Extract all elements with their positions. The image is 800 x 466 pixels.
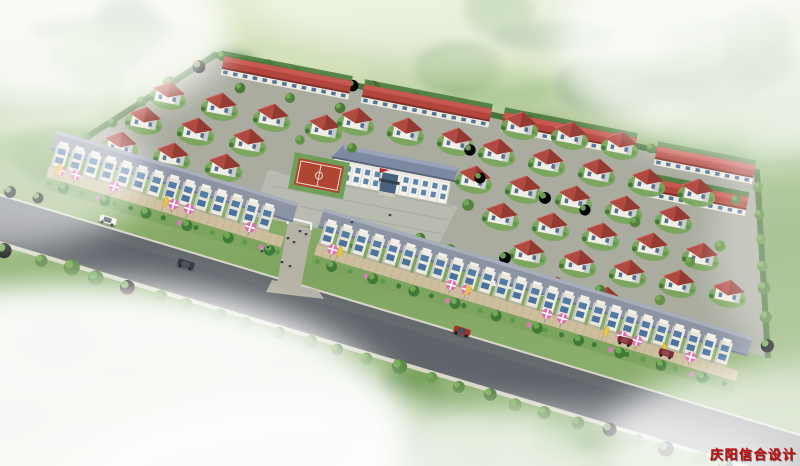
tree: [579, 204, 590, 215]
tree: [646, 144, 656, 154]
tree: [509, 398, 522, 411]
tree: [235, 83, 246, 94]
tree: [453, 381, 465, 393]
tree: [64, 259, 80, 275]
tree: [655, 295, 665, 305]
scene-svg: [0, 0, 800, 466]
tree: [285, 93, 295, 103]
tree: [347, 143, 357, 153]
tree: [539, 192, 551, 204]
tree: [335, 103, 346, 114]
tree: [462, 199, 474, 211]
tree: [685, 257, 695, 267]
tree: [295, 135, 304, 144]
tree: [484, 388, 497, 401]
tree: [474, 172, 485, 183]
tree: [392, 359, 407, 374]
tree: [35, 255, 47, 267]
rendering-canvas: 庆阳信合设计: [0, 0, 800, 466]
tree: [464, 144, 475, 155]
watermark-text: 庆阳信合设计: [710, 444, 797, 463]
tree: [630, 217, 641, 228]
tree: [426, 372, 437, 383]
